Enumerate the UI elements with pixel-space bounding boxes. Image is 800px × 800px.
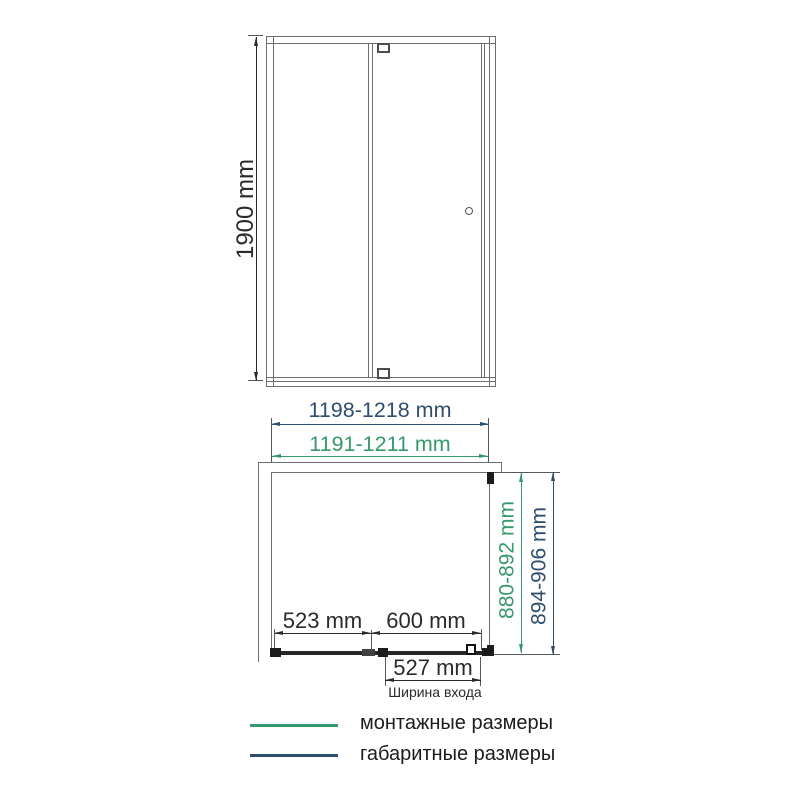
shower-enclosure-dimension-diagram: 1900 mm 1198-1218 mm 1191-1211 mm 523 mm… xyxy=(0,0,800,800)
mounting-legend-line xyxy=(250,724,338,727)
overall-legend-label: габаритные размеры xyxy=(360,743,555,766)
overall-legend-line xyxy=(250,754,338,757)
mounting-legend-label: монтажные размеры xyxy=(360,712,553,735)
legend: монтажные размеры габаритные размеры xyxy=(0,0,800,800)
